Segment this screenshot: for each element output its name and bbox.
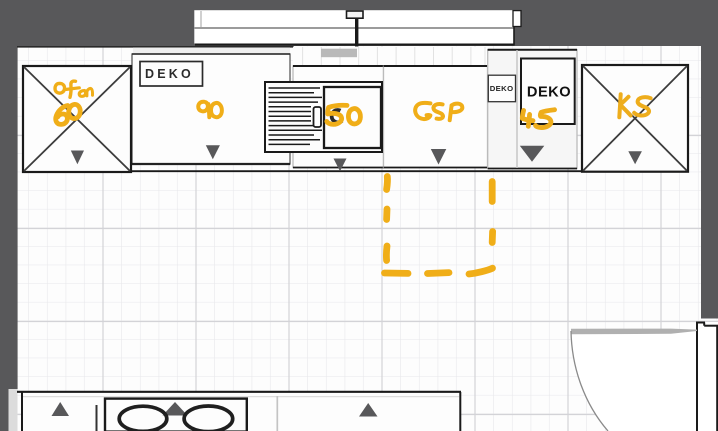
svg-text:DEKO: DEKO <box>527 84 571 100</box>
svg-text:DEKO: DEKO <box>145 67 194 81</box>
svg-text:DEKO: DEKO <box>490 84 514 93</box>
